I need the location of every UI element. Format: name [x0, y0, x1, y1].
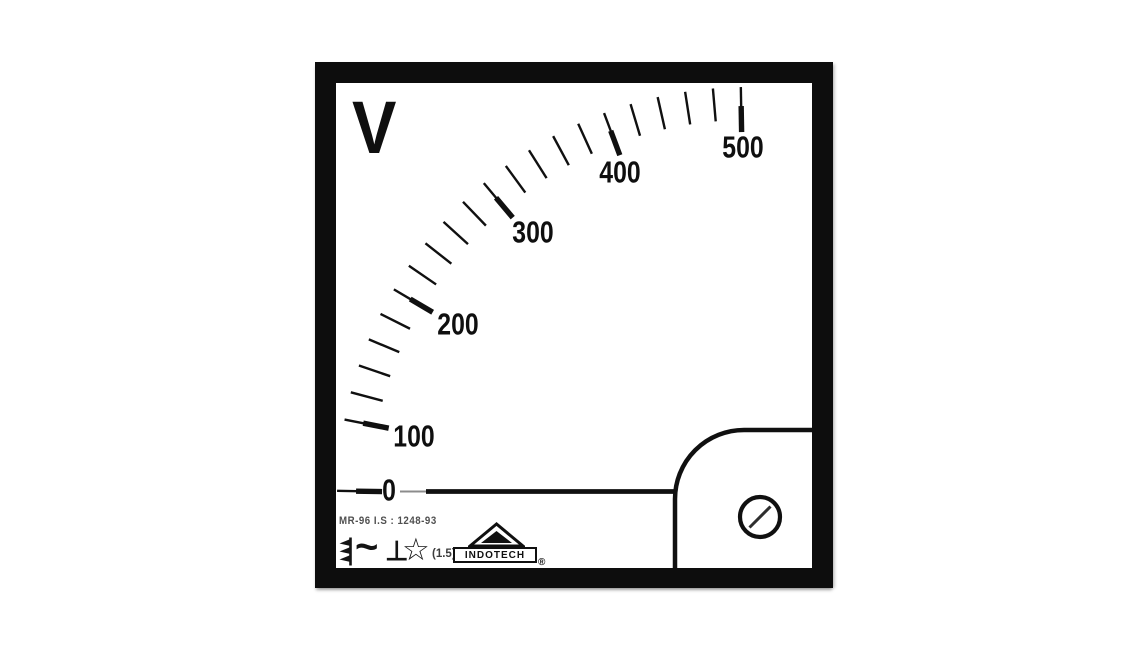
meter-photo-canvas: 0100200300400500 V MR-96 I.S : 1248-93 ~…	[0, 0, 1138, 655]
scale-ticks	[337, 87, 742, 492]
minor-tick	[685, 92, 690, 125]
model-standard-text: MR-96 I.S : 1248-93	[339, 515, 437, 527]
unit-label: V	[352, 91, 396, 165]
minor-tick	[359, 366, 390, 377]
minor-tick	[425, 243, 451, 263]
major-tick-outer	[484, 183, 497, 198]
minor-tick	[381, 314, 411, 329]
major-tick-outer	[604, 113, 611, 132]
meter-scale-graphic	[336, 83, 812, 568]
minor-tick	[553, 136, 569, 165]
moving-iron-icon	[337, 536, 355, 567]
minor-tick	[369, 339, 399, 352]
minor-tick	[578, 124, 592, 154]
major-tick-inner	[363, 423, 389, 428]
major-tick-inner	[611, 131, 620, 155]
minor-tick	[506, 166, 525, 193]
registered-trademark-symbol: ®	[538, 557, 545, 568]
minor-tick	[444, 222, 468, 244]
zero-adjust-panel	[675, 430, 812, 568]
major-tick-inner	[496, 198, 513, 218]
brand-logo-banner: INDOTECH	[453, 547, 537, 563]
insulation-test-star-icon: ☆	[402, 534, 430, 565]
minor-tick	[631, 104, 640, 136]
minor-tick	[529, 150, 547, 178]
major-tick-outer	[345, 420, 365, 424]
meter-dial-face: 0100200300400500 V MR-96 I.S : 1248-93 ~…	[336, 83, 812, 568]
major-tick-inner	[410, 299, 432, 312]
meter-bezel: 0100200300400500 V MR-96 I.S : 1248-93 ~…	[315, 62, 833, 588]
minor-tick	[409, 266, 436, 285]
brand-logo-triangle-icon	[468, 522, 525, 548]
minor-tick	[658, 97, 665, 129]
major-tick-outer	[394, 289, 411, 299]
ac-current-symbol: ~	[355, 527, 378, 567]
minor-tick	[351, 392, 383, 400]
minor-tick	[463, 202, 486, 226]
minor-tick	[713, 89, 716, 122]
